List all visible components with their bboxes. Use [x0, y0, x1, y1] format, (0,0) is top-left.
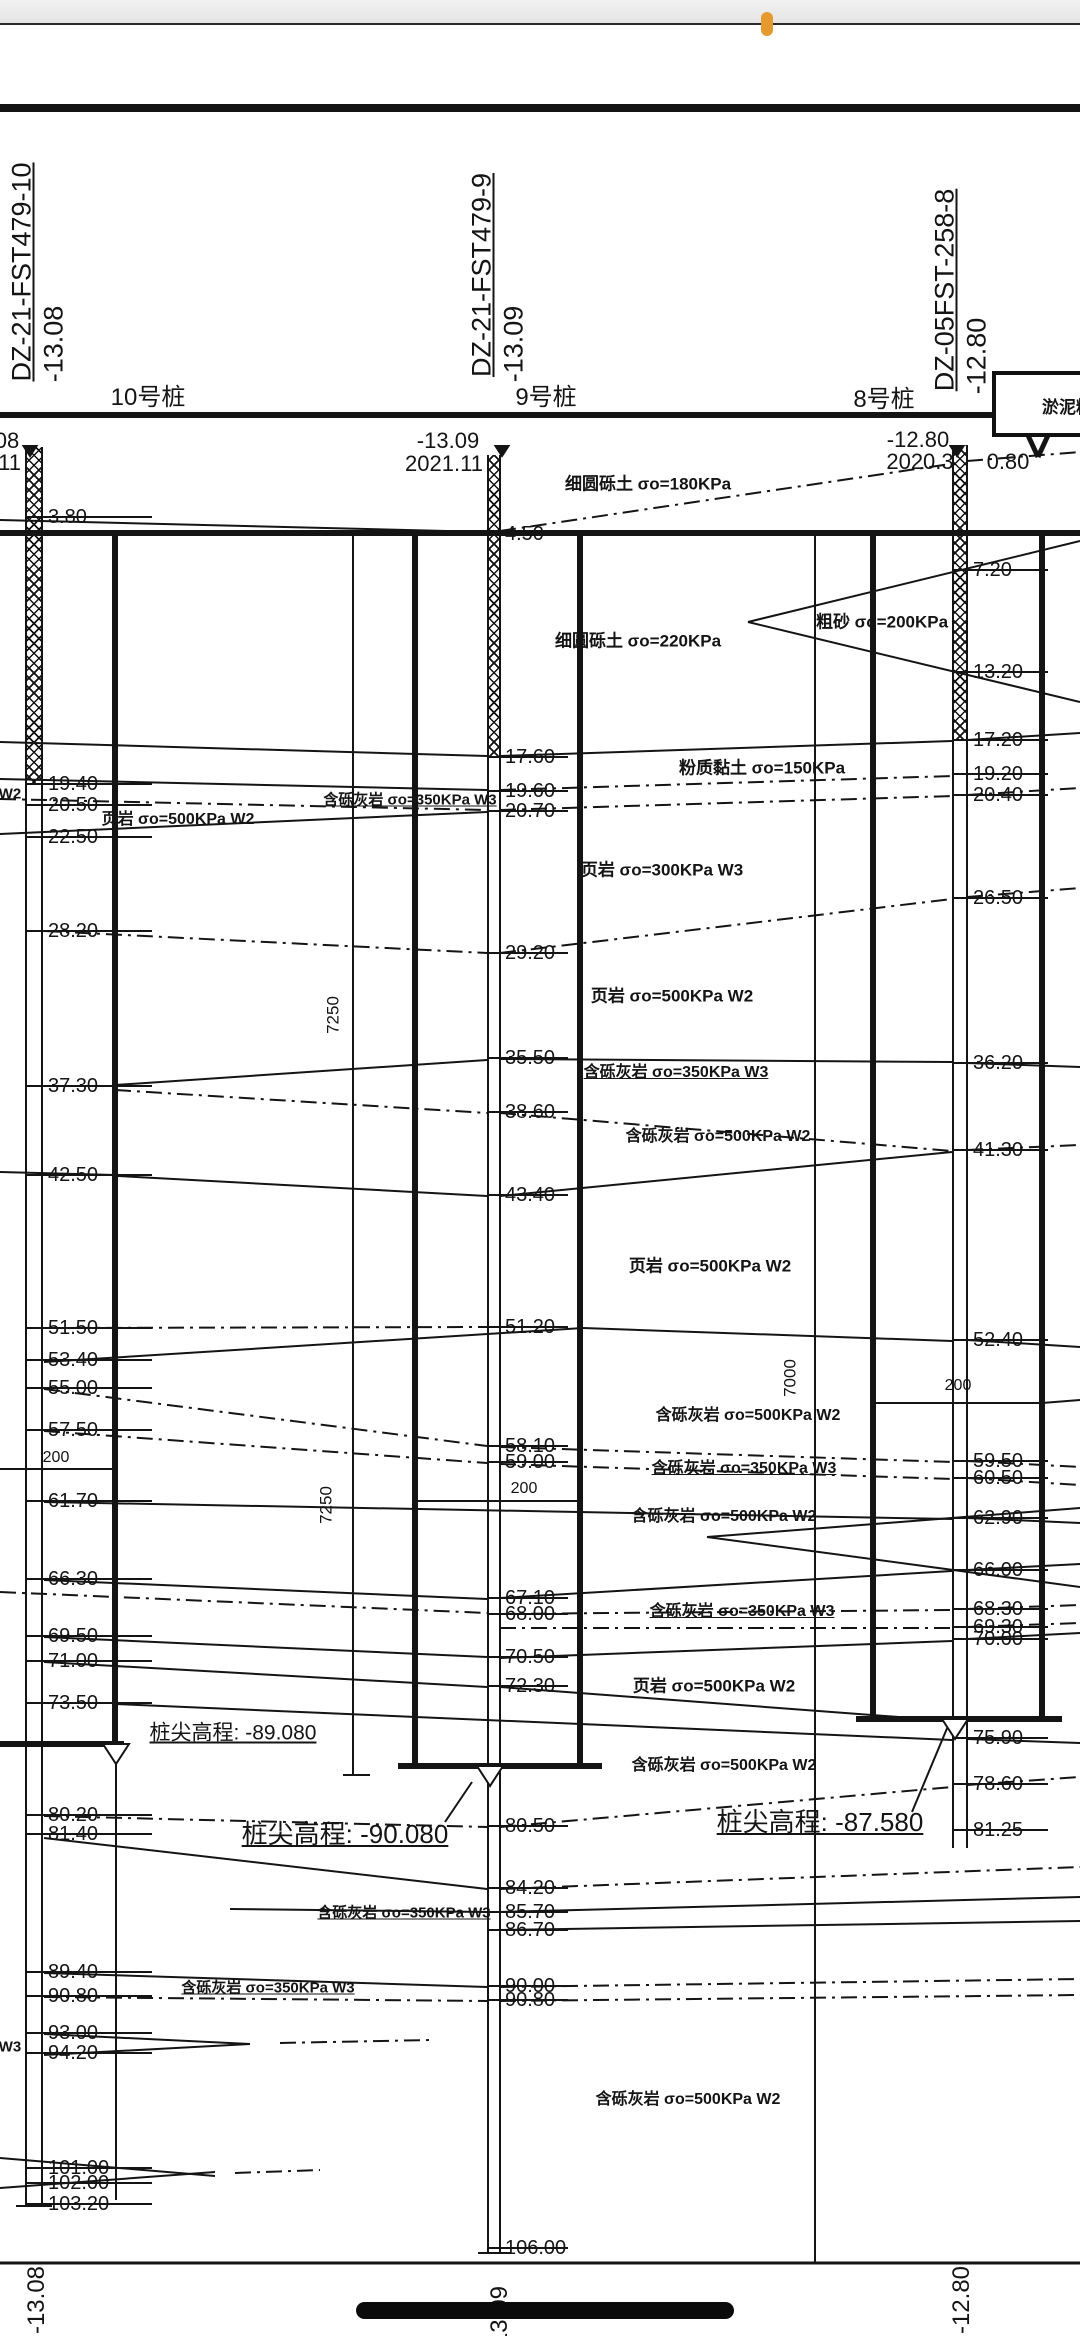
drawing-canvas: 淤泥粉质黏土 3.8019.4020.5022.5028.2037.3042.5…	[0, 0, 1080, 2336]
depth-label: 3.80	[48, 507, 87, 527]
depth-label: 28.20	[48, 921, 98, 941]
depth-label: 75.90	[973, 1728, 1023, 1748]
drawing-text: DZ-05FST-258-8	[932, 189, 959, 392]
drawing-text: 粉质黏土 σo=150KPa	[679, 760, 845, 777]
drawing-text: 7250	[325, 996, 342, 1034]
depth-label: 78.60	[973, 1774, 1023, 1794]
depth-label: 84.20	[505, 1878, 555, 1898]
drawing-line	[707, 1537, 1080, 1587]
depth-label: 38.60	[505, 1102, 555, 1122]
drawing-line	[500, 1152, 952, 1196]
drawing-line	[445, 1782, 472, 1822]
drawing-line	[500, 741, 952, 756]
drawing-text: W2	[0, 787, 21, 802]
pile-tip-icon	[103, 1744, 129, 1764]
depth-label: 86.70	[505, 1920, 555, 1940]
drawing-text: -13.08	[41, 306, 68, 383]
depth-label: 71.00	[48, 1651, 98, 1671]
depth-label: 17.60	[505, 747, 555, 767]
drawing-text: 细圆砾土 σo=180KPa	[565, 476, 731, 493]
depth-label: 103.20	[48, 2194, 109, 2214]
depth-label: 89.40	[48, 1962, 98, 1982]
drawing-line	[44, 1637, 487, 1657]
drawing-text: 桩尖高程: -87.580	[717, 1809, 924, 1835]
drawing-text: -13.09	[417, 430, 479, 452]
drawing-text: DZ-21-FST479-9	[469, 173, 496, 377]
depth-label: 60.50	[973, 1468, 1023, 1488]
depth-label: 80.20	[48, 1805, 98, 1825]
drawing-text: 桩尖高程: -90.080	[242, 1821, 449, 1847]
drawing-line	[44, 1580, 487, 1599]
depth-label: 22.50	[48, 827, 98, 847]
depth-label: 80.50	[505, 1816, 555, 1836]
mud-label-box: 淤泥粉质黏土	[992, 371, 1080, 437]
depth-label: 66.00	[973, 1560, 1023, 1580]
drawing-text: 含砾灰岩 σo=350KPa W3	[323, 793, 496, 808]
drawing-text: 含砾灰岩 σo=500KPa W2	[632, 1509, 817, 1525]
depth-label: 29.20	[505, 943, 555, 963]
drawing-line	[500, 1979, 1080, 1987]
drawing-text: 含砾灰岩 σo=350KPa W3	[181, 1981, 354, 1996]
depth-label: 66.30	[48, 1569, 98, 1589]
drawing-text: 含砾灰岩 σo=350KPa W3	[317, 1906, 490, 1921]
depth-label: 19.60	[505, 781, 555, 801]
depth-label: 62.90	[973, 1508, 1023, 1528]
drawing-text: -13.08	[0, 430, 19, 452]
drawing-line	[280, 2040, 430, 2043]
depth-label: 41.30	[973, 1140, 1023, 1160]
depth-label: 81.25	[973, 1820, 1023, 1840]
drawing-text: 含砾灰岩 σo=350KPa W3	[652, 1461, 837, 1477]
depth-label: 81.40	[48, 1824, 98, 1844]
depth-label: 4.50	[505, 524, 544, 544]
drawing-text: 细圆砾土 σo=220KPa	[555, 633, 721, 650]
drawing-line	[500, 1921, 1080, 1930]
drawing-text: 桩尖高程: -89.080	[150, 1723, 317, 1744]
drawing-text: W3	[0, 2040, 21, 2055]
drawing-text: -12.80	[887, 429, 949, 451]
drawing-text: 含砾灰岩 σo=350KPa W3	[584, 1065, 769, 1081]
drawing-line	[44, 1431, 487, 1463]
depth-label: 20.40	[973, 785, 1023, 805]
depth-label: 51.20	[505, 1317, 555, 1337]
depth-label: 102.00	[48, 2173, 109, 2193]
depth-label: 37.30	[48, 1076, 98, 1096]
drawing-line	[500, 796, 952, 810]
depth-label: 93.00	[48, 2023, 98, 2043]
depth-label: 72.30	[505, 1676, 555, 1696]
depth-label: 57.50	[48, 1420, 98, 1440]
depth-label: 90.80	[505, 1990, 555, 2010]
drawing-text: 页岩 σo=500KPa W2	[629, 1258, 791, 1275]
depth-label: 59.00	[505, 1452, 555, 1472]
drawing-line	[500, 1897, 1080, 1912]
depth-label: 73.50	[48, 1693, 98, 1713]
drawing-text: 200	[945, 1378, 972, 1394]
drawing-line	[500, 1571, 952, 1598]
drawing-text: -12.80	[950, 2266, 974, 2334]
drawing-text: 页岩 σo=500KPa W2	[591, 988, 753, 1005]
depth-label: 52.40	[973, 1330, 1023, 1350]
elevation-arrow-icon	[496, 446, 509, 456]
drawing-text: 2021.11	[405, 453, 483, 475]
drawing-line	[500, 776, 952, 790]
home-indicator[interactable]	[356, 2302, 734, 2319]
drawing-text: 页岩 σo=500KPa W2	[102, 812, 255, 828]
drawing-line	[44, 931, 487, 953]
drawing-line	[44, 1328, 583, 1362]
depth-label: 7.20	[973, 560, 1012, 580]
drawing-text: 8号桩	[853, 388, 914, 412]
depth-label: 70.00	[973, 1629, 1023, 1649]
depth-label: 55.00	[48, 1378, 98, 1398]
drawing-line	[115, 1060, 487, 1085]
drawing-text: 含砾灰岩 σo=350KPa W3	[650, 1604, 835, 1620]
drawing-line	[500, 1059, 952, 1062]
drawing-text: 含砾灰岩 σo=500KPa W2	[626, 1129, 811, 1145]
depth-label: 61.70	[48, 1491, 98, 1511]
depth-label: 13.20	[973, 662, 1023, 682]
drawing-text: 页岩 σo=300KPa W3	[581, 862, 743, 879]
drawing-line	[44, 1662, 487, 1687]
depth-label: 43.40	[505, 1185, 555, 1205]
depth-label: 42.50	[48, 1165, 98, 1185]
drawing-line	[500, 1641, 952, 1658]
drawing-line	[748, 541, 1080, 622]
depth-label: 36.20	[973, 1053, 1023, 1073]
depth-label: 69.50	[48, 1626, 98, 1646]
drawing-text: 含砾灰岩 σo=500KPa W2	[632, 1758, 817, 1774]
depth-label: 20.50	[48, 795, 98, 815]
drawing-line	[500, 899, 952, 953]
drawing-text: DZ-21-FST479-10	[9, 162, 36, 381]
drawing-text: -13.08	[25, 2266, 49, 2334]
mud-label-text: 淤泥粉质黏土	[1042, 393, 1080, 418]
drawing-line	[118, 1176, 487, 1196]
depth-label: 20.70	[505, 801, 555, 821]
drawing-text: 200	[511, 1481, 538, 1497]
drawing-text: 含砾灰岩 σo=500KPa W2	[656, 1408, 841, 1424]
depth-label: 35.50	[505, 1048, 555, 1068]
drawing-text: 0.80	[987, 451, 1030, 473]
drawing-line	[1042, 1400, 1080, 1403]
drawing-line	[115, 1090, 487, 1113]
drawing-text: 含砾灰岩 σo=500KPa W2	[596, 2092, 781, 2108]
drawing-line	[583, 1328, 952, 1341]
drawing-text: 200	[43, 1450, 70, 1466]
drawing-line	[44, 1997, 487, 2001]
depth-label: 26.50	[973, 888, 1023, 908]
drawing-line	[44, 1389, 487, 1446]
depth-label: 94.20	[48, 2043, 98, 2063]
drawing-text: 页岩 σo=500KPa W2	[633, 1678, 795, 1695]
depth-label: 19.20	[973, 764, 1023, 784]
drawing-line	[500, 1867, 1080, 1889]
drawing-text: -13.09	[501, 306, 528, 383]
depth-label: 17.20	[973, 730, 1023, 750]
depth-label: 19.40	[48, 774, 98, 794]
depth-label: 106.00	[505, 2238, 566, 2258]
depth-label: 90.80	[48, 1986, 98, 2006]
drawing-line	[235, 2170, 320, 2173]
drawing-text: 9号桩	[515, 386, 576, 410]
drawing-line	[748, 622, 1080, 702]
depth-label: 68.00	[505, 1604, 555, 1624]
depth-label: 70.50	[505, 1647, 555, 1667]
drawing-text: 粗砂 σo=200KPa	[816, 614, 948, 631]
drawing-text: 7250	[318, 1486, 335, 1524]
depth-label: 51.50	[48, 1318, 98, 1338]
drawing-text: 2021.11	[0, 452, 21, 474]
drawing-line	[500, 1995, 1080, 2001]
drawing-text: 7000	[782, 1359, 799, 1397]
depth-label: 53.40	[48, 1350, 98, 1370]
drawing-text: -12.80	[964, 318, 991, 395]
drawing-text: 10号桩	[111, 386, 186, 410]
drawing-text: 2020.3	[886, 451, 953, 473]
